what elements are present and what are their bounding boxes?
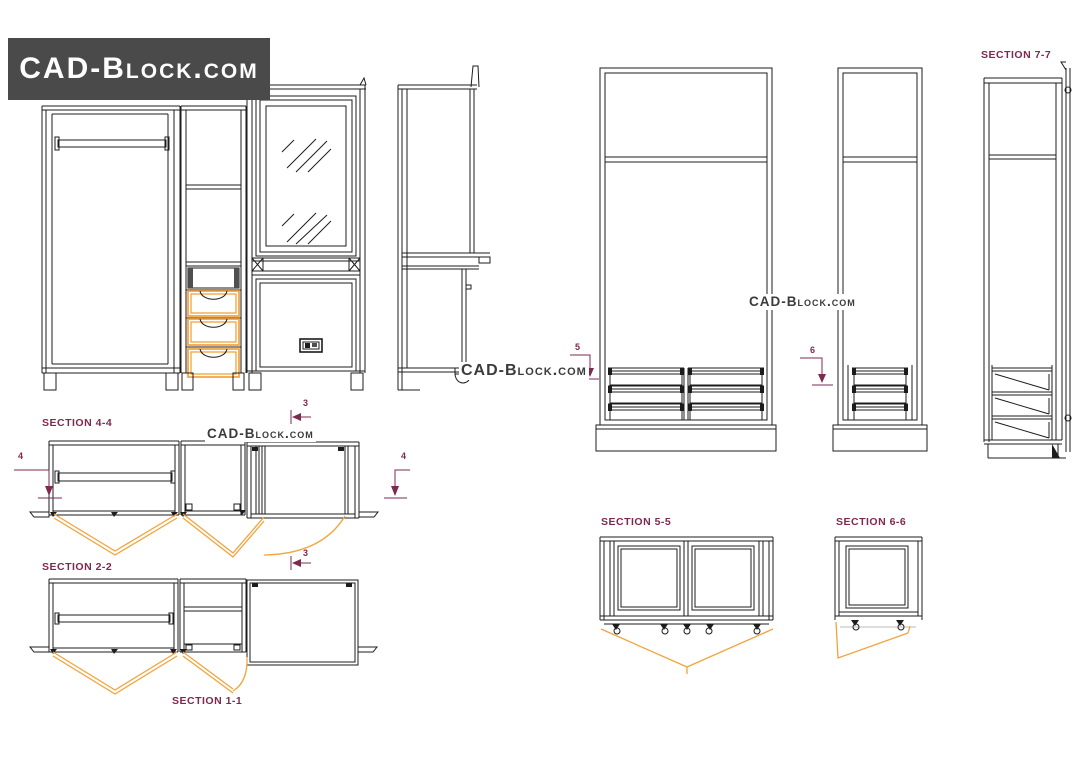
section-6-6-plan (835, 537, 922, 658)
section-4-4-plan (30, 441, 378, 557)
caster-icons (612, 624, 761, 634)
section-7-7-view (984, 62, 1071, 458)
section-elevation-narrow (833, 68, 927, 451)
section-5-5-plan (600, 537, 773, 674)
marker-digit-3-mid: 3 (303, 549, 308, 558)
marker-digit-4-left: 4 (18, 452, 23, 461)
caster-icons (851, 620, 904, 630)
label-section-1-1: SECTION 1-1 (172, 696, 242, 707)
section-2-2-plan (30, 579, 377, 694)
watermark-middle: CAD-Block.com (459, 362, 589, 380)
front-elevation (42, 78, 366, 390)
marker-digit-5: 5 (575, 343, 580, 352)
label-section-5-5: SECTION 5-5 (601, 517, 671, 528)
cad-drawing-sheet: CAD-Block.com CAD-Block.com CAD-Block.co… (0, 0, 1080, 760)
cad-block-logo-text: CAD-Block.com (19, 54, 258, 84)
side-view (398, 66, 490, 390)
cad-block-logo: CAD-Block.com (8, 38, 270, 100)
label-section-6-6: SECTION 6-6 (836, 517, 906, 528)
label-section-7-7: SECTION 7-7 (981, 50, 1051, 61)
label-section-4-4: SECTION 4-4 (42, 418, 112, 429)
watermark-section: CAD-Block.com (747, 294, 858, 310)
marker-digit-6: 6 (810, 346, 815, 355)
cad-linework (0, 0, 1080, 760)
section-elevation-wide (596, 68, 776, 451)
watermark-plan: CAD-Block.com (205, 426, 316, 442)
label-section-2-2: SECTION 2-2 (42, 562, 112, 573)
marker-digit-3-top: 3 (303, 399, 308, 408)
marker-digit-4-right: 4 (401, 452, 406, 461)
